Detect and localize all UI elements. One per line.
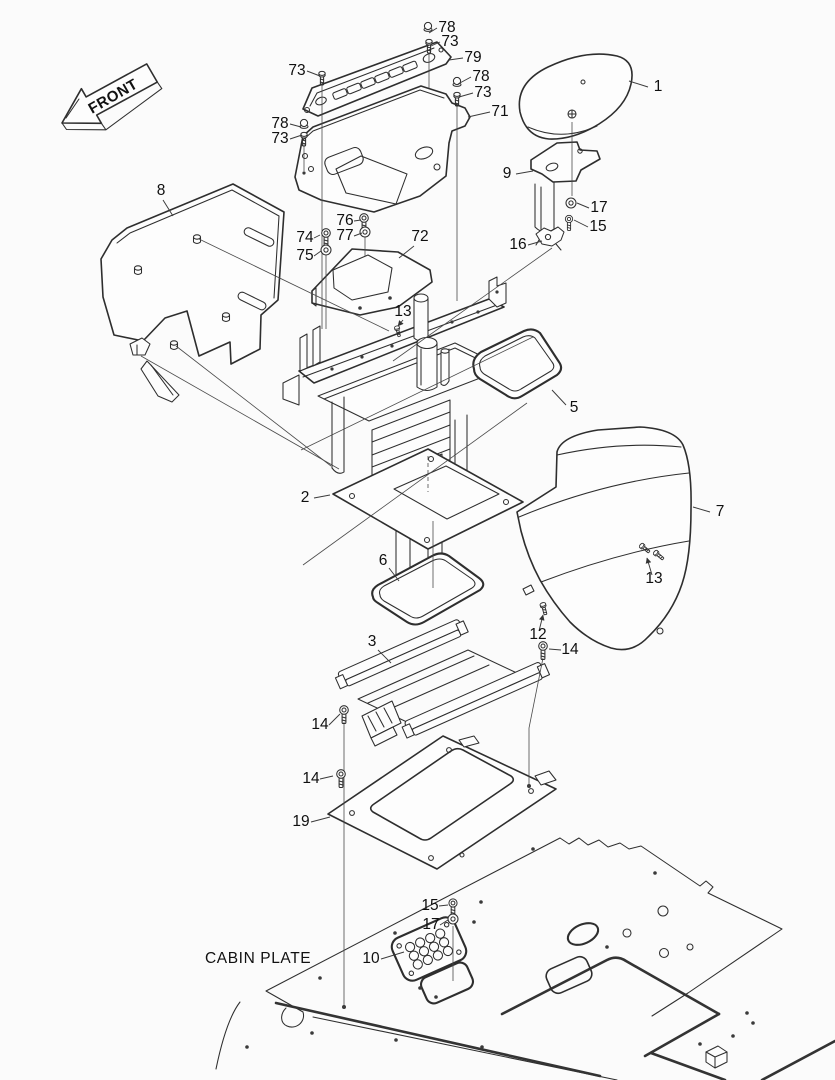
seat-suspension-frame [283,277,506,596]
frame-cylinder-small [414,294,428,341]
callout-79: 79 [464,49,481,66]
callout-77: 77 [336,227,353,244]
callout-17: 17 [422,916,439,933]
callout-14: 14 [302,770,320,787]
callout-73: 73 [441,33,458,50]
cap-78 [300,119,308,128]
callout-72: 72 [411,228,428,245]
diagram-canvas: 78 73 79 73 78 73 71 78 73 8 1 9 17 15 1… [0,0,835,1080]
callout-2: 2 [301,489,310,506]
part-1-armrest [519,54,632,139]
callout-1: 1 [654,78,663,95]
callout-19: 19 [292,813,309,830]
callout-17: 17 [590,199,607,216]
callout-73: 73 [474,84,491,101]
bolt-74 [322,229,331,247]
callout-8: 8 [157,182,166,199]
callout-15: 15 [589,218,606,235]
bolt-15 [565,215,572,230]
callout-5: 5 [570,399,579,416]
part-3-slide-rails [334,617,550,746]
callout-73: 73 [288,62,305,79]
callout-14: 14 [561,641,579,658]
part-19-mount-plate [328,736,556,869]
mount-peg [171,341,178,350]
washer-17 [566,198,576,208]
washer-75 [321,245,331,255]
bolt-15 [449,899,457,916]
callout-16: 16 [509,236,526,253]
callout-78: 78 [472,68,489,85]
part-8-side-cover [101,184,284,402]
exploded-parts-diagram-page: 78 73 79 73 78 73 71 78 73 8 1 9 17 15 1… [0,0,835,1080]
callout-6: 6 [379,552,388,569]
callout-7: 7 [716,503,725,520]
callout-14: 14 [311,716,329,733]
cap-78 [453,77,461,86]
frame-cylinder-large [417,338,437,391]
callout-13: 13 [394,303,411,320]
cabin-plate-block [706,1046,727,1068]
callout-71: 71 [491,103,508,120]
screw-12 [540,602,549,615]
cabin-plate-label: CABIN PLATE [205,950,311,967]
callout-73: 73 [271,130,288,147]
callout-74: 74 [296,229,314,246]
front-arrow: FRONT [62,64,162,130]
part-5-seal [473,329,561,398]
washer-17 [448,914,458,924]
callout-9: 9 [503,165,512,182]
callout-3: 3 [368,633,377,650]
callout-75: 75 [296,247,313,264]
callout-12: 12 [529,626,546,643]
bolt-14 [539,642,548,660]
part-16-clamp [536,227,564,250]
washer-77 [360,227,370,237]
cap-78 [424,22,432,31]
callout-13: 13 [645,570,662,587]
callout-15: 15 [421,897,438,914]
part-6-seal [372,554,483,625]
rail-hatched-bracket [362,701,401,746]
bolt-14 [340,706,349,724]
callout-10: 10 [362,950,380,967]
